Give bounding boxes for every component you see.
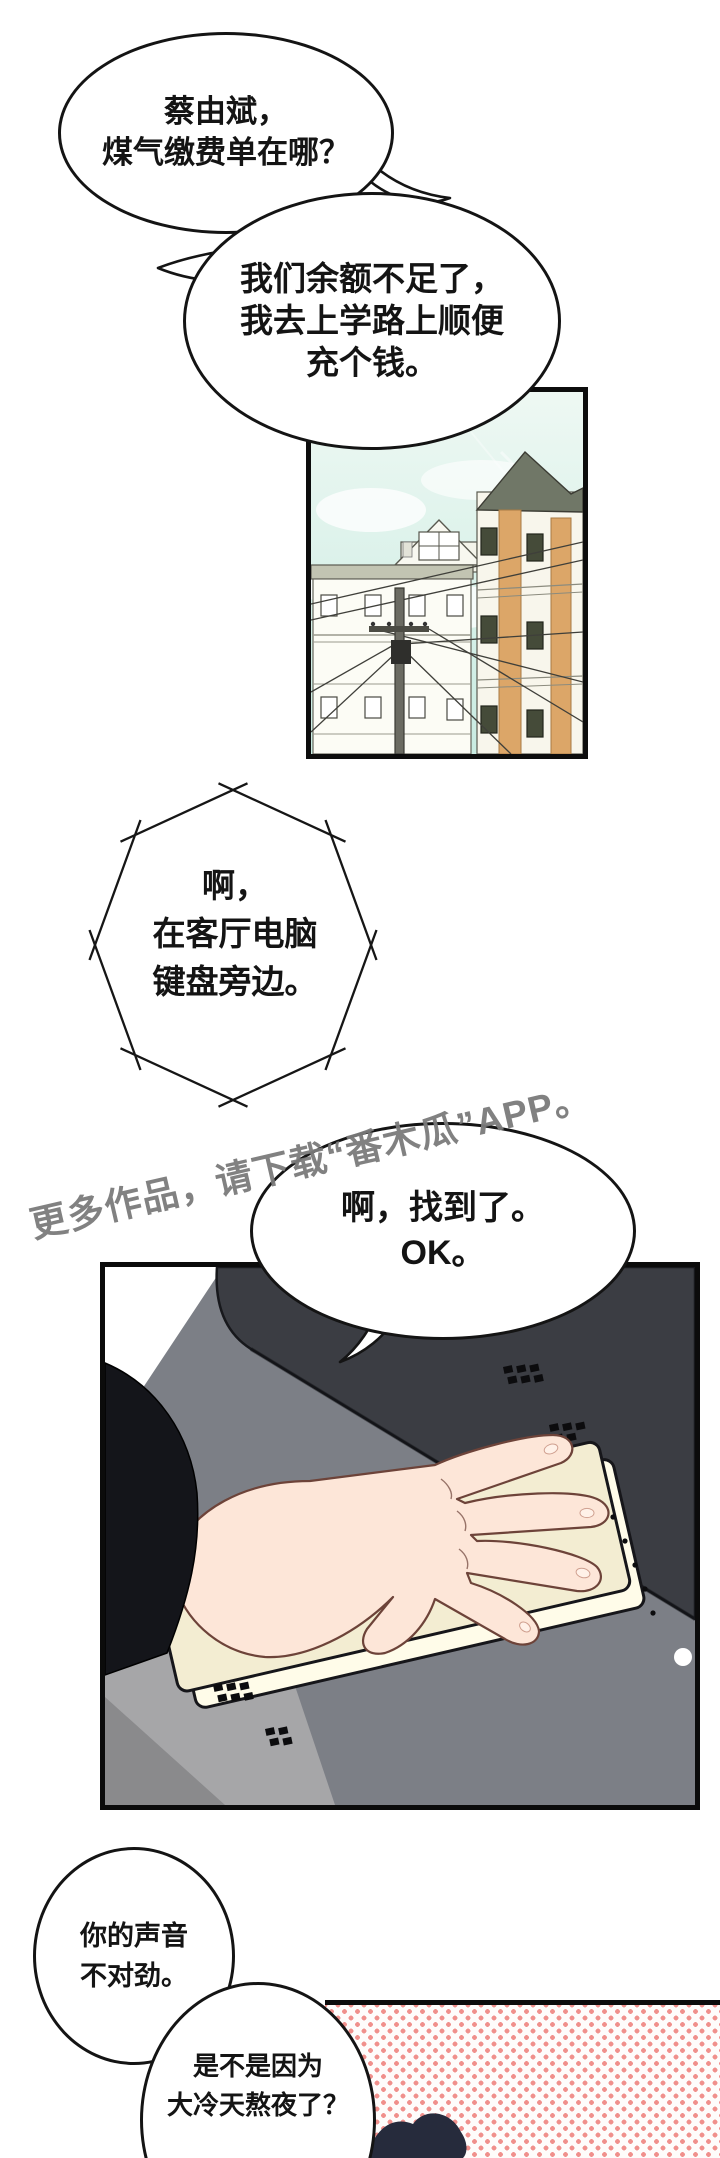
speech-line: OK。 [341,1231,545,1276]
speech-line: 在客厅电脑 [95,910,375,958]
pink-halftone-panel [325,2000,720,2158]
speech-line: 键盘旁边。 [95,958,375,1006]
speech-line: 蔡由斌， [102,92,350,133]
speech-line: 是不是因为 [167,2047,349,2086]
speech-line: 我去上学路上顺便 [240,300,504,342]
speech-line: 啊，找到了。 [341,1186,545,1231]
hair-silhouette [325,2005,720,2158]
white-dot [674,1648,692,1666]
speech-bubble-2: 我们余额不足了， 我去上学路上顺便 充个钱。 [183,192,561,450]
speech-line: 啊， [95,862,375,910]
speech-line: 大冷天熬夜了？ [167,2086,349,2125]
comic-page: 蔡由斌， 煤气缴费单在哪？ 我们余额不足了， 我去上学路上顺便 充个钱。 [0,0,720,2158]
right-building [477,452,583,754]
speech-bubble-6: 是不是因为 大冷天熬夜了？ [140,1982,376,2158]
speech-line: 煤气缴费单在哪？ [102,133,350,174]
speech-line: 充个钱。 [240,342,504,384]
phone-voice-text: 啊， 在客厅电脑 键盘旁边。 [95,862,375,1006]
speech-line: 我们余额不足了， [240,258,504,300]
speech-line: 你的声音 [80,1916,188,1957]
